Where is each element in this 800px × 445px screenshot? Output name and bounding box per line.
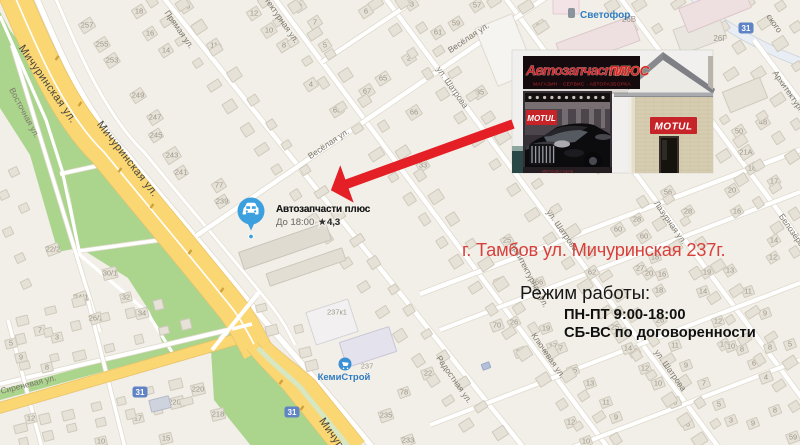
svg-text:12: 12 xyxy=(27,414,35,423)
svg-text:31: 31 xyxy=(742,24,751,33)
svg-text:19: 19 xyxy=(542,324,550,333)
svg-text:MOTUL: MOTUL xyxy=(527,114,556,123)
svg-text:26Г: 26Г xyxy=(713,34,727,43)
svg-text:5: 5 xyxy=(788,340,792,349)
svg-text:220: 220 xyxy=(192,385,205,394)
svg-text:7: 7 xyxy=(702,379,706,388)
svg-text:22/2: 22/2 xyxy=(46,245,61,254)
svg-text:ПЛЮС: ПЛЮС xyxy=(609,64,650,79)
svg-text:18: 18 xyxy=(135,7,143,16)
svg-text:237: 237 xyxy=(361,362,374,371)
svg-text:60: 60 xyxy=(614,225,622,234)
svg-text:10: 10 xyxy=(97,437,105,445)
svg-text:4,3: 4,3 xyxy=(327,217,340,228)
svg-text:10: 10 xyxy=(265,26,273,35)
svg-text:20: 20 xyxy=(645,269,653,278)
svg-text:59: 59 xyxy=(789,433,797,442)
svg-text:7: 7 xyxy=(38,326,42,335)
svg-text:245: 245 xyxy=(150,131,163,140)
svg-text:30/1: 30/1 xyxy=(103,269,118,278)
svg-text:Режим работы:: Режим работы: xyxy=(520,282,650,303)
svg-text:28: 28 xyxy=(633,215,641,224)
svg-text:СБ-ВС по договоренности: СБ-ВС по договоренности xyxy=(564,325,756,341)
svg-text:57: 57 xyxy=(473,1,481,10)
svg-text:15: 15 xyxy=(162,434,170,443)
svg-text:8: 8 xyxy=(45,363,49,372)
svg-text:7: 7 xyxy=(313,18,317,27)
svg-text:★: ★ xyxy=(318,217,327,228)
svg-text:10: 10 xyxy=(654,379,662,388)
svg-text:Светофор: Светофор xyxy=(580,9,630,21)
svg-text:10: 10 xyxy=(727,342,735,351)
svg-text:12: 12 xyxy=(641,364,649,373)
svg-text:253: 253 xyxy=(106,56,119,65)
svg-text:6: 6 xyxy=(364,7,368,16)
svg-text:59: 59 xyxy=(452,19,460,28)
svg-text:3: 3 xyxy=(55,333,59,342)
svg-text:78: 78 xyxy=(400,388,408,397)
svg-text:9: 9 xyxy=(614,413,618,422)
svg-text:20: 20 xyxy=(728,186,736,195)
svg-text:8: 8 xyxy=(282,41,286,50)
svg-text:4: 4 xyxy=(764,373,768,382)
svg-text:249: 249 xyxy=(132,91,145,100)
svg-text:13: 13 xyxy=(726,266,734,275)
svg-text:12: 12 xyxy=(250,9,258,18)
svg-text:8: 8 xyxy=(773,406,777,415)
svg-text:11: 11 xyxy=(671,341,679,350)
svg-text:МАГАЗИН · СЕРВИС · АВТОРАЗБОРК: МАГАЗИН · СЕРВИС · АВТОРАЗБОРКА xyxy=(533,82,631,88)
svg-text:66: 66 xyxy=(410,108,418,117)
svg-text:77: 77 xyxy=(215,181,223,190)
svg-text:21А: 21А xyxy=(739,148,752,157)
svg-text:218: 218 xyxy=(212,410,225,419)
svg-text:11: 11 xyxy=(744,287,752,296)
svg-text:19: 19 xyxy=(703,268,711,277)
svg-text:До 18:00: До 18:00 xyxy=(276,217,314,228)
svg-text:16: 16 xyxy=(733,207,741,216)
svg-text:9: 9 xyxy=(751,419,755,428)
svg-text:КемиСтрой: КемиСтрой xyxy=(318,372,371,383)
svg-text:13: 13 xyxy=(586,379,594,388)
svg-text:16: 16 xyxy=(658,270,666,279)
svg-text:233: 233 xyxy=(402,436,415,445)
svg-text:243: 243 xyxy=(166,151,179,160)
svg-text:3: 3 xyxy=(729,416,733,425)
svg-text:9: 9 xyxy=(684,361,688,370)
svg-text:8: 8 xyxy=(768,343,772,352)
svg-text:257: 257 xyxy=(81,21,94,30)
svg-text:МЕРСЕДЕС-БЕНЦ: МЕРСЕДЕС-БЕНЦ xyxy=(542,169,574,173)
svg-text:32: 32 xyxy=(122,293,130,302)
svg-text:5: 5 xyxy=(717,400,721,409)
svg-text:4: 4 xyxy=(309,80,313,89)
svg-text:ПН-ПТ 9:00-18:00: ПН-ПТ 9:00-18:00 xyxy=(564,307,686,323)
svg-text:9: 9 xyxy=(763,309,767,318)
svg-text:255: 255 xyxy=(96,40,109,49)
svg-text:11: 11 xyxy=(602,398,610,407)
svg-text:3: 3 xyxy=(410,0,414,9)
svg-text:16: 16 xyxy=(146,29,154,38)
svg-text:239: 239 xyxy=(216,197,229,206)
svg-text:70: 70 xyxy=(493,321,501,330)
svg-text:31: 31 xyxy=(288,408,297,417)
svg-text:14: 14 xyxy=(624,344,632,353)
svg-text:27: 27 xyxy=(636,264,644,273)
svg-text:12: 12 xyxy=(769,253,777,262)
svg-text:14: 14 xyxy=(162,46,170,55)
svg-text:247: 247 xyxy=(149,113,162,122)
svg-text:241: 241 xyxy=(175,168,188,177)
svg-text:34: 34 xyxy=(138,309,146,318)
svg-text:5: 5 xyxy=(323,41,327,50)
svg-text:235: 235 xyxy=(380,411,393,420)
svg-text:26: 26 xyxy=(510,318,518,327)
svg-text:Автозапчасти плюс: Автозапчасти плюс xyxy=(276,204,371,215)
svg-text:14: 14 xyxy=(770,236,778,245)
svg-text:9: 9 xyxy=(19,353,23,362)
svg-text:61: 61 xyxy=(434,28,442,37)
svg-text:31: 31 xyxy=(136,388,145,397)
svg-text:14: 14 xyxy=(699,287,707,296)
svg-text:18: 18 xyxy=(655,286,663,295)
svg-text:65: 65 xyxy=(379,74,387,83)
svg-text:237к1: 237к1 xyxy=(327,308,347,317)
svg-text:г. Тамбов ул. Мичуринская 237г: г. Тамбов ул. Мичуринская 237г. xyxy=(462,239,725,260)
svg-text:5: 5 xyxy=(9,339,13,348)
svg-text:10: 10 xyxy=(582,437,590,445)
svg-text:28: 28 xyxy=(684,207,692,216)
svg-text:62: 62 xyxy=(588,268,596,277)
svg-text:MOTUL: MOTUL xyxy=(654,122,692,133)
